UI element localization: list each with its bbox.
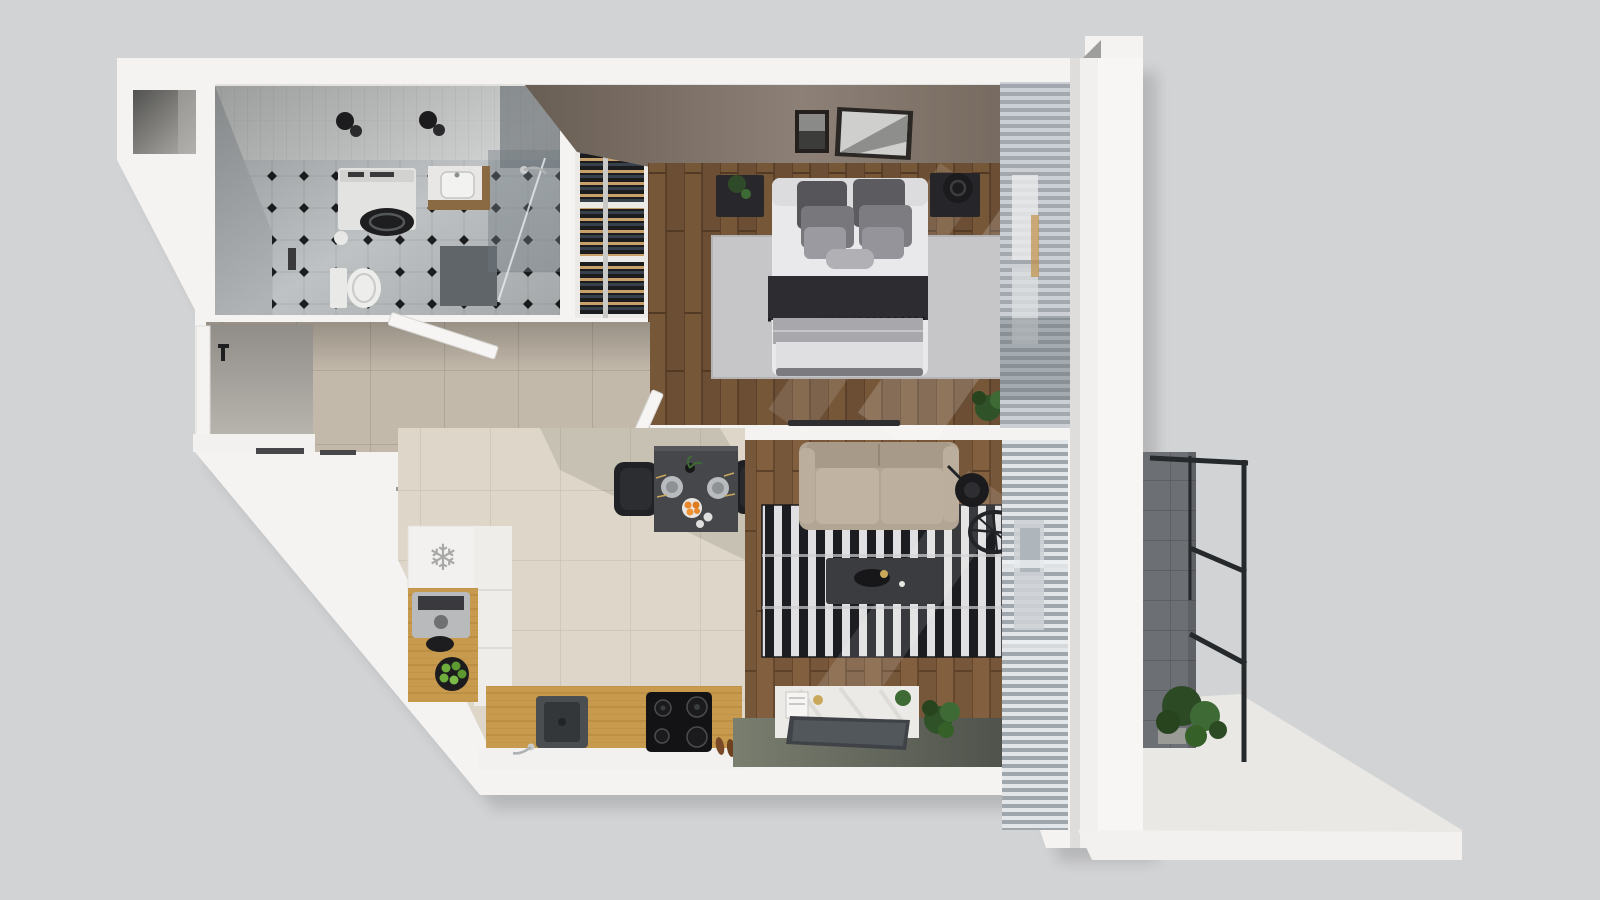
floorplan-render: 3D top-view floor plan render of a one-b…	[0, 0, 1600, 900]
doormat-1	[256, 448, 304, 454]
wall-niche	[133, 90, 196, 154]
floorplan-canvas: ❄	[0, 0, 1600, 900]
curtain-lower-shadow	[1000, 318, 1070, 400]
fruit-plate	[435, 657, 469, 691]
entry-nook-shade	[208, 324, 313, 440]
table-lamp	[943, 173, 973, 203]
toilet	[330, 268, 381, 308]
sofa	[799, 442, 959, 530]
bedroom-south-console	[788, 420, 900, 426]
terrace-fascia	[1078, 830, 1462, 860]
cabinet-rail	[603, 142, 608, 318]
kitchen-tall-cabinets	[474, 526, 512, 706]
sideboard-plant	[895, 690, 911, 706]
nightstand-right	[930, 173, 980, 217]
gold-bowl	[813, 695, 823, 705]
nightstand-left	[716, 175, 764, 217]
fridge-cabinet: ❄	[408, 526, 478, 590]
small-plate-1	[704, 513, 713, 522]
bed-foot-edge	[776, 368, 923, 376]
snowflake-icon: ❄	[428, 538, 458, 579]
right-wall-column	[1070, 58, 1143, 848]
cabinet-bay-mid	[580, 208, 644, 256]
bolster-pillow	[826, 249, 874, 269]
cabinet-bay-bottom	[580, 262, 644, 314]
wall-picture-small	[795, 110, 829, 153]
orange-bowl	[682, 498, 702, 518]
balcony-plant	[1156, 686, 1227, 747]
wall-picture-large	[835, 107, 913, 160]
doormat-2	[320, 450, 356, 455]
wall-switch	[288, 248, 296, 270]
bed-foot	[776, 342, 923, 372]
cooktop	[646, 692, 712, 752]
double-bed	[768, 178, 928, 376]
tv-panel	[786, 716, 910, 750]
toilet-paper-roll	[334, 231, 348, 245]
throw-blanket	[768, 276, 928, 320]
coffee-table	[826, 558, 942, 604]
vanity-sink	[428, 166, 490, 210]
small-plate-2	[696, 520, 704, 528]
book-stack	[786, 692, 808, 718]
washing-machine	[338, 168, 416, 236]
entry-door	[196, 326, 210, 438]
coffee-grinder	[426, 636, 454, 652]
room-bathroom	[215, 86, 560, 315]
window-amber-glimpse	[1031, 215, 1039, 277]
